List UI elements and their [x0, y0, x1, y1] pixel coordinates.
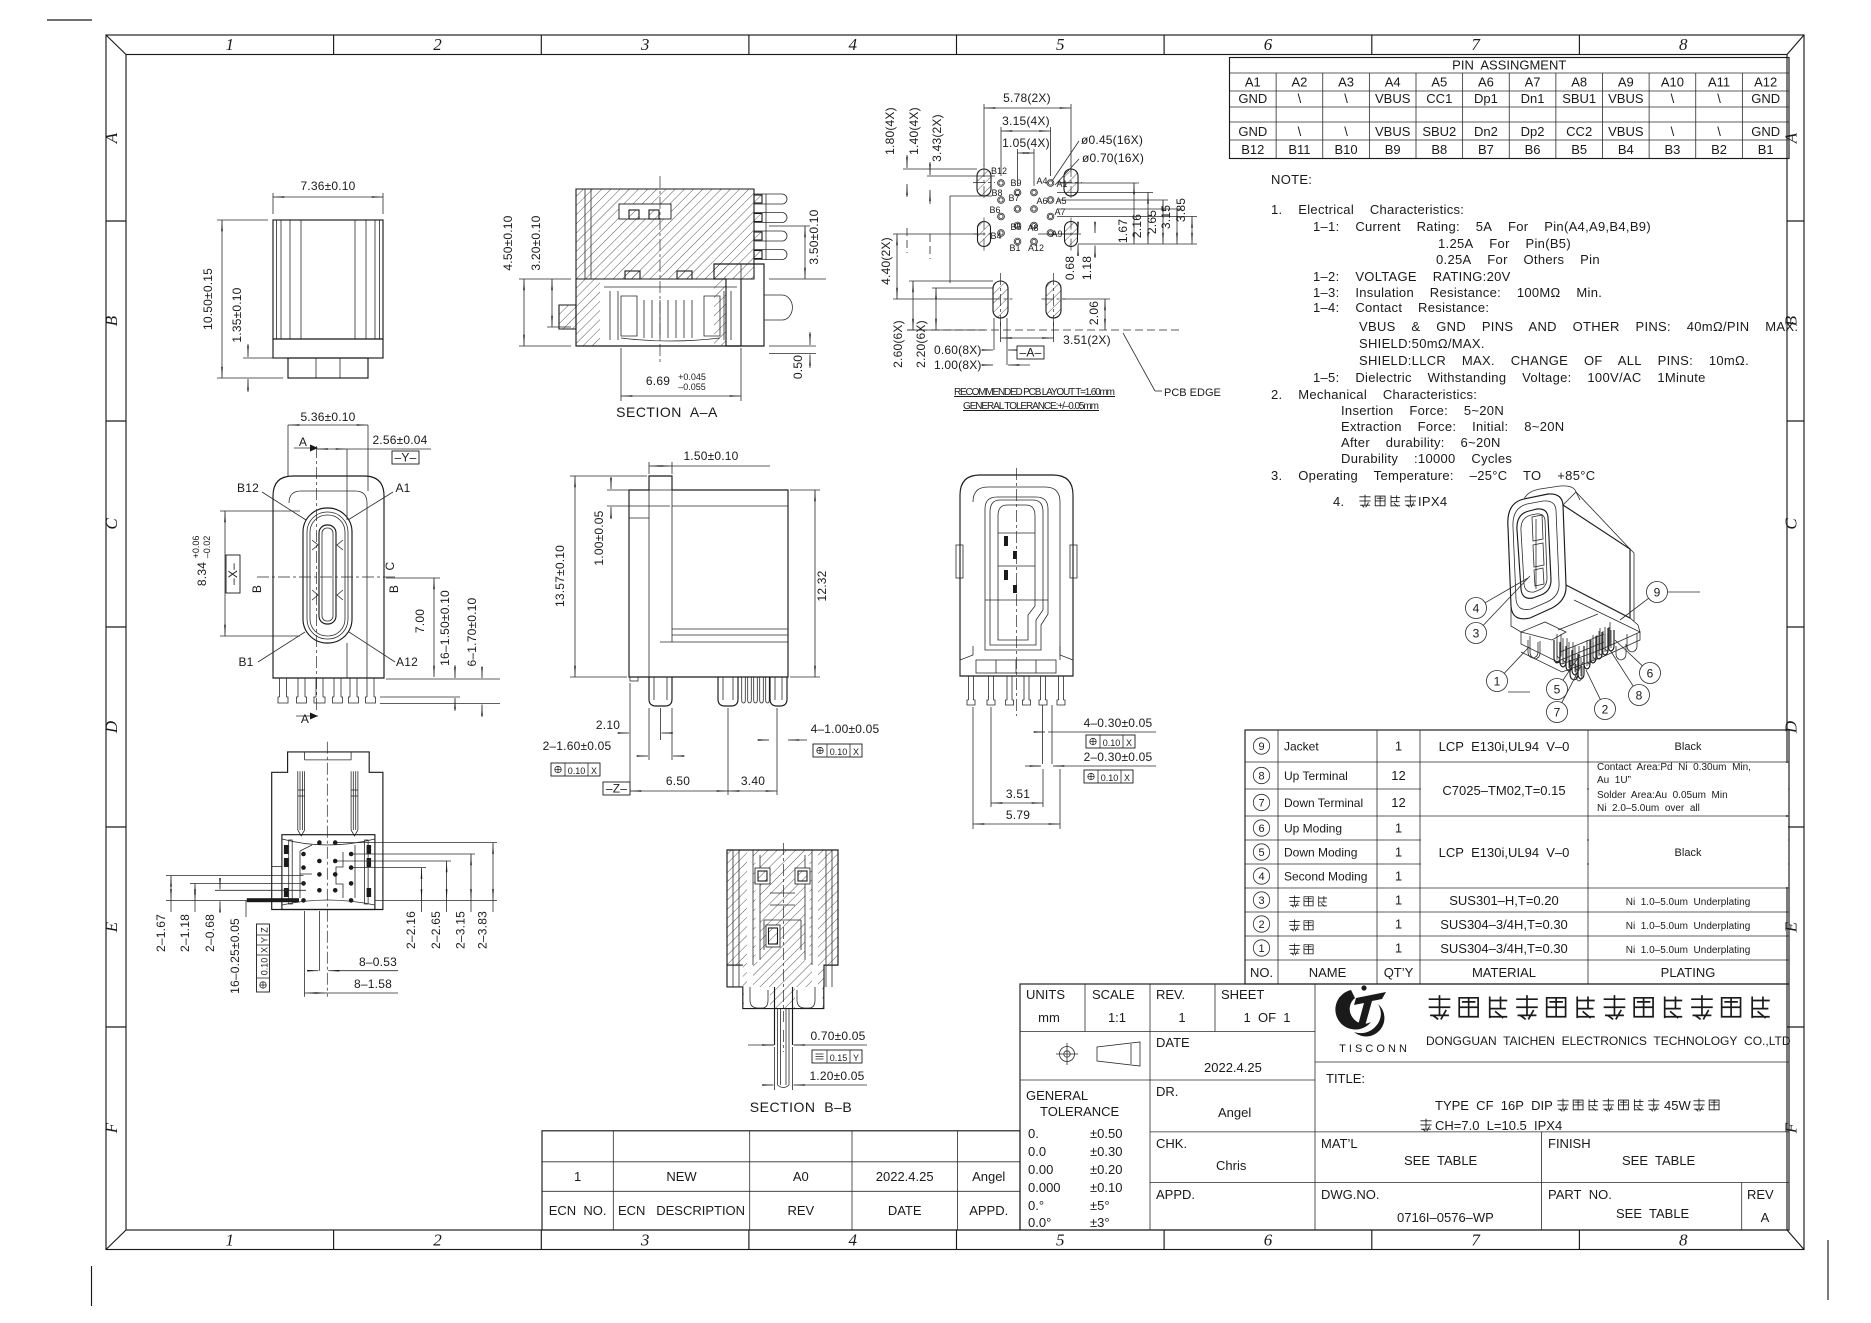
svg-text:MAT’L: MAT’L	[1321, 1136, 1358, 1151]
svg-text:2: 2	[433, 1231, 442, 1250]
svg-text:3: 3	[1473, 627, 1480, 641]
svg-text:0.°: 0.°	[1028, 1198, 1044, 1213]
svg-text:B: B	[102, 315, 121, 326]
svg-text:B4: B4	[1618, 142, 1634, 157]
svg-text:2–1.67: 2–1.67	[154, 914, 168, 952]
svg-text:Au 1U”: Au 1U”	[1597, 775, 1631, 786]
svg-text:A7: A7	[1054, 207, 1065, 217]
svg-text:X: X	[591, 766, 597, 776]
svg-text:5: 5	[1554, 683, 1561, 697]
svg-text:\: \	[1717, 124, 1721, 139]
svg-text:VBUS: VBUS	[1375, 124, 1411, 139]
svg-text:±0.50: ±0.50	[1090, 1126, 1122, 1141]
svg-text:0.60(8X): 0.60(8X)	[934, 343, 982, 357]
svg-text:\: \	[1344, 91, 1348, 106]
svg-text:1.05(4X): 1.05(4X)	[1002, 136, 1050, 150]
svg-text:B1: B1	[1758, 142, 1774, 157]
svg-text:B4: B4	[990, 231, 1001, 241]
svg-text:1: 1	[226, 1231, 235, 1250]
svg-text:7.36±0.10: 7.36±0.10	[300, 179, 355, 193]
svg-text:CC2: CC2	[1566, 124, 1592, 139]
svg-text:Second Moding: Second Moding	[1284, 870, 1367, 884]
svg-text:A7: A7	[1525, 75, 1541, 90]
svg-text:Ni 1.0–5.0um Underplating: Ni 1.0–5.0um Underplating	[1626, 921, 1751, 932]
svg-text:Insertion Force: 5~20N: Insertion Force: 5~20N	[1341, 403, 1504, 418]
svg-text:5: 5	[1258, 847, 1264, 859]
svg-text:1. Electrical Characteristic: 1. Electrical Characteristics:	[1271, 202, 1464, 217]
svg-text:±0.20: ±0.20	[1090, 1162, 1122, 1177]
svg-text:1: 1	[1494, 675, 1501, 689]
svg-text:A1: A1	[1245, 75, 1261, 90]
svg-text:9: 9	[1654, 586, 1661, 600]
svg-text:5: 5	[1056, 1231, 1065, 1250]
svg-text:1.00±0.05: 1.00±0.05	[592, 510, 606, 565]
svg-text:6: 6	[1264, 1231, 1273, 1250]
svg-text:A5: A5	[1055, 196, 1066, 206]
svg-text:A: A	[1782, 132, 1801, 144]
svg-text:PART NO.: PART NO.	[1548, 1187, 1612, 1202]
svg-text:Durability :10000 Cycles: Durability :10000 Cycles	[1341, 451, 1512, 466]
svg-text:4.40(2X): 4.40(2X)	[879, 237, 893, 285]
svg-text:NAME: NAME	[1309, 965, 1347, 980]
svg-text:Jacket: Jacket	[1284, 740, 1319, 754]
svg-text:8: 8	[1679, 35, 1688, 54]
svg-text:\: \	[1298, 124, 1302, 139]
svg-text:ø0.70(16X): ø0.70(16X)	[1082, 151, 1144, 165]
svg-text:6: 6	[1258, 823, 1264, 835]
svg-text:3.15: 3.15	[1159, 205, 1173, 229]
svg-text:2022.4.25: 2022.4.25	[1204, 1060, 1262, 1075]
svg-text:Contact Area:Pd Ni 0.30um: Contact Area:Pd Ni 0.30um Min,	[1597, 762, 1751, 773]
svg-text:8.34: 8.34	[195, 562, 209, 586]
svg-text:Chris: Chris	[1216, 1158, 1247, 1173]
svg-text:4–1.00±0.05: 4–1.00±0.05	[811, 722, 880, 736]
svg-text:D: D	[102, 720, 121, 734]
svg-text:8–0.53: 8–0.53	[359, 955, 397, 969]
svg-text:C: C	[1782, 518, 1801, 530]
svg-text:3.43(2X): 3.43(2X)	[930, 114, 944, 162]
svg-text:D: D	[1782, 720, 1801, 734]
svg-text:DONGGUAN TAICHEN ELECTRONICS: DONGGUAN TAICHEN ELECTRONICS TECHNOLOGY …	[1426, 1034, 1791, 1048]
svg-text:\: \	[1671, 91, 1675, 106]
svg-text:1: 1	[1395, 821, 1402, 836]
svg-text:0.10: 0.10	[1103, 738, 1121, 748]
svg-text:C: C	[383, 561, 397, 570]
svg-text:SBU2: SBU2	[1422, 124, 1456, 139]
svg-text:MATERIAL: MATERIAL	[1472, 965, 1536, 980]
svg-text:8: 8	[1258, 771, 1264, 783]
svg-text:0.15: 0.15	[830, 1053, 848, 1063]
svg-text:TITLE:: TITLE:	[1326, 1071, 1365, 1086]
svg-text:REV: REV	[787, 1203, 814, 1218]
svg-text:GND: GND	[1751, 91, 1780, 106]
svg-text:B5: B5	[1571, 142, 1587, 157]
svg-text:\: \	[1671, 124, 1675, 139]
svg-text:B5: B5	[1010, 222, 1021, 232]
svg-text:A9: A9	[1618, 75, 1634, 90]
svg-text:X: X	[853, 747, 859, 757]
svg-text:2.60(6X): 2.60(6X)	[891, 320, 905, 368]
svg-text:6.50: 6.50	[666, 774, 690, 788]
svg-text:SCALE: SCALE	[1092, 987, 1135, 1002]
svg-text:SEE TABLE: SEE TABLE	[1616, 1206, 1690, 1221]
svg-text:0.10: 0.10	[568, 766, 586, 776]
svg-text:2–0.68: 2–0.68	[203, 914, 217, 952]
svg-text:SHEET: SHEET	[1221, 987, 1264, 1002]
svg-text:E: E	[1782, 921, 1801, 933]
svg-text:–0.055: –0.055	[678, 382, 706, 392]
svg-text:0.70±0.05: 0.70±0.05	[810, 1029, 865, 1043]
svg-text:B7: B7	[1008, 193, 1019, 203]
svg-text:0.10: 0.10	[1101, 773, 1119, 783]
svg-text:1–4: Contact Resistance:: 1–4: Contact Resistance:	[1313, 300, 1489, 315]
svg-text:1: 1	[1395, 739, 1402, 754]
svg-text:DWG.NO.: DWG.NO.	[1321, 1187, 1380, 1202]
svg-text:4–0.30±0.05: 4–0.30±0.05	[1084, 716, 1153, 730]
svg-text:2. Mechanical Characteristic: 2. Mechanical Characteristics:	[1271, 387, 1477, 402]
svg-text:B8: B8	[991, 188, 1002, 198]
svg-text:1.40(4X): 1.40(4X)	[907, 107, 921, 155]
svg-text:A8: A8	[1571, 75, 1587, 90]
svg-text:2–0.30±0.05: 2–0.30±0.05	[1084, 750, 1153, 764]
svg-text:X: X	[1124, 773, 1130, 783]
svg-text:2.56±0.04: 2.56±0.04	[372, 433, 427, 447]
svg-text:1–3: Insulation Resistance:: 1–3: Insulation Resistance: 100MΩ Min.	[1313, 285, 1602, 300]
svg-text:2.20(6X): 2.20(6X)	[914, 320, 928, 368]
svg-text:VBUS: VBUS	[1375, 91, 1411, 106]
svg-text:1.00(8X): 1.00(8X)	[934, 358, 982, 372]
svg-text:Angel: Angel	[972, 1169, 1005, 1184]
svg-text:Angel: Angel	[1218, 1105, 1251, 1120]
svg-text:1.25A For Pin(B5): 1.25A For Pin(B5)	[1438, 236, 1571, 251]
svg-text:3.50±0.10: 3.50±0.10	[807, 209, 821, 264]
svg-text:2: 2	[433, 35, 442, 54]
svg-text:16–1.50±0.10: 16–1.50±0.10	[438, 590, 452, 666]
svg-text:0.0°: 0.0°	[1028, 1215, 1051, 1230]
svg-text:9: 9	[1258, 741, 1264, 753]
svg-text:\: \	[1298, 91, 1302, 106]
svg-text:1: 1	[1258, 943, 1264, 955]
svg-text:5.36±0.10: 5.36±0.10	[300, 410, 355, 424]
svg-text:B9: B9	[1385, 142, 1401, 157]
svg-text:5: 5	[1056, 35, 1065, 54]
svg-text:B10: B10	[1334, 142, 1357, 157]
svg-text:B12: B12	[237, 481, 259, 495]
svg-text:ECN DESCRIPTION: ECN DESCRIPTION	[618, 1203, 745, 1218]
svg-text:0.25A For Others Pin: 0.25A For Others Pin	[1436, 252, 1600, 267]
svg-text:A6: A6	[1036, 196, 1047, 206]
svg-text:Solder Area:Au 0.05um Min: Solder Area:Au 0.05um Min	[1597, 790, 1728, 801]
svg-text:1.18: 1.18	[1080, 256, 1094, 280]
svg-text:VBUS: VBUS	[1608, 124, 1644, 139]
svg-text:1: 1	[1178, 1010, 1185, 1025]
svg-text:REV.: REV.	[1156, 987, 1185, 1002]
svg-text:3.20±0.10: 3.20±0.10	[529, 215, 543, 270]
svg-text:UNITS: UNITS	[1026, 987, 1065, 1002]
svg-text:7.00: 7.00	[413, 609, 427, 633]
svg-text:APPD.: APPD.	[1156, 1187, 1195, 1202]
svg-text:4: 4	[1258, 871, 1264, 883]
svg-text:1: 1	[1395, 917, 1402, 932]
svg-text:1.20±0.05: 1.20±0.05	[809, 1069, 864, 1083]
svg-text:IPX4: IPX4	[1418, 494, 1447, 509]
svg-text:0.10: 0.10	[260, 958, 270, 976]
svg-text:7: 7	[1471, 1231, 1481, 1250]
svg-text:Black: Black	[1675, 741, 1702, 753]
svg-text:After durability: 6~20N: After durability: 6~20N	[1341, 435, 1501, 450]
svg-text:GND: GND	[1238, 91, 1267, 106]
svg-text:A: A	[301, 712, 309, 726]
svg-text:\: \	[1717, 91, 1721, 106]
svg-text:SEE TABLE: SEE TABLE	[1622, 1153, 1696, 1168]
svg-text:4: 4	[1473, 602, 1480, 616]
svg-text:GND: GND	[1751, 124, 1780, 139]
svg-text:A6: A6	[1478, 75, 1494, 90]
svg-text:C7025–TM02,T=0.15: C7025–TM02,T=0.15	[1442, 783, 1565, 798]
svg-text:Ni 1.0–5.0um Underplating: Ni 1.0–5.0um Underplating	[1626, 897, 1751, 908]
svg-text:\: \	[1344, 124, 1348, 139]
svg-text:4.50±0.10: 4.50±0.10	[501, 215, 515, 270]
svg-text:A10: A10	[1661, 75, 1684, 90]
svg-text:CHK.: CHK.	[1156, 1136, 1187, 1151]
svg-text:2.65: 2.65	[1145, 210, 1159, 234]
svg-text:SECTION A–A: SECTION A–A	[616, 404, 718, 420]
svg-text:NOTE:: NOTE:	[1271, 172, 1312, 187]
svg-text:2–2.65: 2–2.65	[429, 911, 443, 949]
svg-text:A0: A0	[793, 1169, 809, 1184]
svg-text:8: 8	[1636, 689, 1643, 703]
svg-text:DR.: DR.	[1156, 1084, 1178, 1099]
svg-text:1: 1	[1395, 893, 1402, 908]
svg-text:3: 3	[1258, 895, 1264, 907]
svg-text:2: 2	[1602, 703, 1609, 717]
svg-text:A4: A4	[1385, 75, 1401, 90]
svg-text:1.67: 1.67	[1116, 219, 1130, 243]
svg-text:10.50±0.15: 10.50±0.15	[201, 268, 215, 330]
svg-text:+0.06: +0.06	[191, 536, 201, 559]
svg-text:1: 1	[226, 35, 235, 54]
svg-text:T I S C O N N: T I S C O N N	[1339, 1043, 1407, 1055]
svg-text:APPD.: APPD.	[969, 1203, 1008, 1218]
svg-text:45W: 45W	[1664, 1098, 1691, 1113]
svg-text:±5°: ±5°	[1090, 1198, 1110, 1213]
svg-text:TOLERANCE: TOLERANCE	[1040, 1104, 1120, 1119]
svg-text:2–1.60±0.05: 2–1.60±0.05	[543, 739, 612, 753]
svg-text:3.40: 3.40	[741, 774, 765, 788]
svg-text:SHIELD:50mΩ/MAX.: SHIELD:50mΩ/MAX.	[1359, 336, 1485, 351]
svg-text:1–1: Current Rating: 5A Fo: 1–1: Current Rating: 5A For Pin(A4,A9,B4…	[1313, 219, 1651, 234]
svg-text:RECOMMENDED PCB LAYOUT T=1.60m: RECOMMENDED PCB LAYOUT T=1.60mm	[954, 387, 1115, 398]
svg-text:±0.30: ±0.30	[1090, 1144, 1122, 1159]
svg-text:1–5: Dielectric Withstanding: 1–5: Dielectric Withstanding Voltage: 10…	[1313, 370, 1706, 385]
svg-text:A: A	[1761, 1210, 1770, 1225]
svg-text:3: 3	[640, 35, 650, 54]
svg-text:Y: Y	[260, 937, 270, 943]
svg-text:4: 4	[848, 35, 857, 54]
svg-text:F: F	[102, 1122, 121, 1134]
svg-text:Black: Black	[1675, 847, 1702, 859]
svg-text:B12: B12	[991, 166, 1007, 176]
svg-text:A12: A12	[1754, 75, 1777, 90]
svg-text:0.000: 0.000	[1028, 1180, 1061, 1195]
svg-text:3.51: 3.51	[1006, 787, 1030, 801]
svg-text:2: 2	[1258, 919, 1264, 931]
svg-text:1 OF 1: 1 OF 1	[1244, 1010, 1291, 1025]
svg-text:B: B	[250, 585, 264, 593]
svg-text:Up Terminal: Up Terminal	[1284, 769, 1348, 783]
svg-text:2.06: 2.06	[1087, 301, 1101, 325]
svg-text:VBUS: VBUS	[1608, 91, 1644, 106]
svg-text:B6: B6	[989, 205, 1000, 215]
svg-text:1–2: VOLTAGE RATING:20V: 1–2: VOLTAGE RATING:20V	[1313, 269, 1511, 284]
svg-text:6.69: 6.69	[646, 374, 670, 388]
svg-text:C: C	[102, 518, 121, 530]
svg-text:A12: A12	[396, 655, 418, 669]
svg-text:2–2.16: 2–2.16	[404, 911, 418, 949]
svg-text:Extraction Force: Initial:: Extraction Force: Initial: 8~20N	[1341, 419, 1564, 434]
svg-text:B12: B12	[1241, 142, 1264, 157]
svg-text:0716I–0576–WP: 0716I–0576–WP	[1397, 1210, 1494, 1225]
svg-text:F: F	[1782, 1122, 1801, 1134]
svg-text:12.32: 12.32	[815, 570, 829, 601]
svg-text:A2: A2	[1291, 75, 1307, 90]
svg-text:8: 8	[1679, 1231, 1688, 1250]
svg-text:12: 12	[1391, 768, 1405, 783]
svg-text:±0.10: ±0.10	[1090, 1180, 1122, 1195]
svg-text:NO.: NO.	[1250, 965, 1273, 980]
svg-text:B1: B1	[1009, 243, 1020, 253]
svg-text:VBUS & GND PINS AND OTHER: VBUS & GND PINS AND OTHER PINS: 40mΩ/PIN…	[1359, 319, 1798, 334]
svg-text:Y: Y	[853, 1053, 859, 1063]
svg-text:Up Moding: Up Moding	[1284, 822, 1342, 836]
svg-text:4.: 4.	[1333, 494, 1344, 509]
svg-text:–0.02: –0.02	[202, 536, 212, 559]
svg-text:1: 1	[1395, 869, 1402, 884]
svg-text:B: B	[387, 585, 401, 593]
svg-text:SEE TABLE: SEE TABLE	[1404, 1153, 1478, 1168]
svg-text:–Z–: –Z–	[606, 782, 627, 796]
svg-text:±3°: ±3°	[1090, 1215, 1110, 1230]
svg-text:4: 4	[848, 1231, 857, 1250]
svg-text:Ni 1.0–5.0um Underplating: Ni 1.0–5.0um Underplating	[1626, 945, 1751, 956]
svg-text:PIN ASSINGMENT: PIN ASSINGMENT	[1452, 58, 1566, 73]
svg-text:Ni 2.0–5.0um over all: Ni 2.0–5.0um over all	[1597, 803, 1700, 814]
svg-text:SECTION B–B: SECTION B–B	[750, 1099, 852, 1115]
svg-text:ECN NO.: ECN NO.	[549, 1203, 607, 1218]
svg-text:6: 6	[1264, 35, 1273, 54]
svg-text:A8: A8	[1027, 223, 1038, 233]
svg-text:A: A	[299, 435, 307, 449]
svg-text:B3: B3	[1664, 142, 1680, 157]
svg-text:6: 6	[1647, 667, 1654, 681]
svg-text:0.00: 0.00	[1028, 1162, 1053, 1177]
svg-text:2–3.83: 2–3.83	[476, 911, 490, 949]
svg-text:A3: A3	[1338, 75, 1354, 90]
svg-text:A1: A1	[395, 481, 410, 495]
svg-text:0.50: 0.50	[791, 355, 805, 379]
svg-text:CH=7.0 L=10.5 IPX4: CH=7.0 L=10.5 IPX4	[1435, 1118, 1562, 1133]
svg-text:–X–: –X–	[226, 563, 240, 585]
svg-text:B9: B9	[1010, 178, 1021, 188]
svg-text:13.57±0.10: 13.57±0.10	[553, 545, 567, 607]
svg-text:B7: B7	[1478, 142, 1494, 157]
svg-text:DATE: DATE	[1156, 1035, 1190, 1050]
svg-text:A1: A1	[1056, 179, 1067, 189]
svg-text:2022.4.25: 2022.4.25	[876, 1169, 934, 1184]
svg-text:NEW: NEW	[666, 1169, 697, 1184]
svg-text:1.80(4X): 1.80(4X)	[883, 107, 897, 155]
svg-text:3.15(4X): 3.15(4X)	[1002, 114, 1050, 128]
svg-text:Down Terminal: Down Terminal	[1284, 796, 1363, 810]
svg-text:A: A	[102, 132, 121, 144]
svg-text:Dn2: Dn2	[1474, 124, 1498, 139]
svg-text:7: 7	[1554, 706, 1561, 720]
svg-text:8–1.58: 8–1.58	[354, 977, 392, 991]
svg-text:SUS304–3/4H,T=0.30: SUS304–3/4H,T=0.30	[1440, 941, 1568, 956]
svg-text:LCP E130i,UL94 V–0: LCP E130i,UL94 V–0	[1439, 739, 1570, 754]
svg-text:B8: B8	[1431, 142, 1447, 157]
svg-text:Dp2: Dp2	[1521, 124, 1545, 139]
svg-text:7: 7	[1471, 35, 1481, 54]
svg-text:Z: Z	[260, 927, 270, 933]
svg-text:7: 7	[1258, 798, 1264, 810]
svg-text:1.35±0.10: 1.35±0.10	[230, 287, 244, 342]
svg-text:0.68: 0.68	[1063, 256, 1077, 280]
svg-text:GND: GND	[1238, 124, 1267, 139]
svg-text:CC1: CC1	[1426, 91, 1452, 106]
svg-text:3.51(2X): 3.51(2X)	[1063, 333, 1111, 347]
svg-text:Down Moding: Down Moding	[1284, 846, 1357, 860]
svg-text:ø0.45(16X): ø0.45(16X)	[1081, 133, 1143, 147]
svg-text:SUS301–H,T=0.20: SUS301–H,T=0.20	[1449, 893, 1558, 908]
svg-text:PCB EDGE: PCB EDGE	[1164, 387, 1221, 399]
svg-text:B6: B6	[1525, 142, 1541, 157]
svg-text:1: 1	[1395, 941, 1402, 956]
svg-text:B11: B11	[1288, 142, 1310, 157]
svg-text:5.79: 5.79	[1006, 808, 1030, 822]
svg-text:6–1.70±0.10: 6–1.70±0.10	[465, 597, 479, 666]
svg-text:3. Operating Temperature: –: 3. Operating Temperature: –25°C TO +85°C	[1271, 468, 1595, 483]
svg-text:1: 1	[574, 1169, 581, 1184]
svg-text:SUS304–3/4H,T=0.30: SUS304–3/4H,T=0.30	[1440, 917, 1568, 932]
svg-text:1.50±0.10: 1.50±0.10	[683, 449, 738, 463]
svg-text:mm: mm	[1038, 1010, 1060, 1025]
svg-text:LCP E130i,UL94 V–0: LCP E130i,UL94 V–0	[1439, 845, 1570, 860]
svg-text:B1: B1	[238, 655, 253, 669]
svg-text:B2: B2	[1711, 142, 1727, 157]
svg-text:0.: 0.	[1028, 1126, 1039, 1141]
svg-text:GENERAL TOLERANCE:+/–0.05mm: GENERAL TOLERANCE:+/–0.05mm	[963, 401, 1099, 412]
svg-text:A5: A5	[1431, 75, 1447, 90]
svg-text:12: 12	[1391, 795, 1405, 810]
svg-text:A12: A12	[1028, 243, 1044, 253]
svg-text:A11: A11	[1708, 75, 1730, 90]
svg-text:X: X	[260, 947, 270, 953]
svg-text:E: E	[102, 921, 121, 933]
svg-text:QT’Y: QT’Y	[1384, 965, 1414, 980]
svg-text:16–0.25±0.05: 16–0.25±0.05	[228, 918, 242, 994]
svg-text:–A–: –A–	[1020, 346, 1042, 360]
svg-text:Dp1: Dp1	[1474, 91, 1498, 106]
svg-text:5.78(2X): 5.78(2X)	[1003, 91, 1051, 105]
svg-text:PLATING: PLATING	[1661, 965, 1716, 980]
svg-text:REV: REV	[1747, 1187, 1774, 1202]
svg-text:FINISH: FINISH	[1548, 1136, 1591, 1151]
svg-text:3.85: 3.85	[1174, 198, 1188, 222]
svg-text:GENERAL: GENERAL	[1026, 1088, 1088, 1103]
svg-text:2–3.15: 2–3.15	[454, 911, 468, 949]
svg-text:SBU1: SBU1	[1562, 91, 1596, 106]
